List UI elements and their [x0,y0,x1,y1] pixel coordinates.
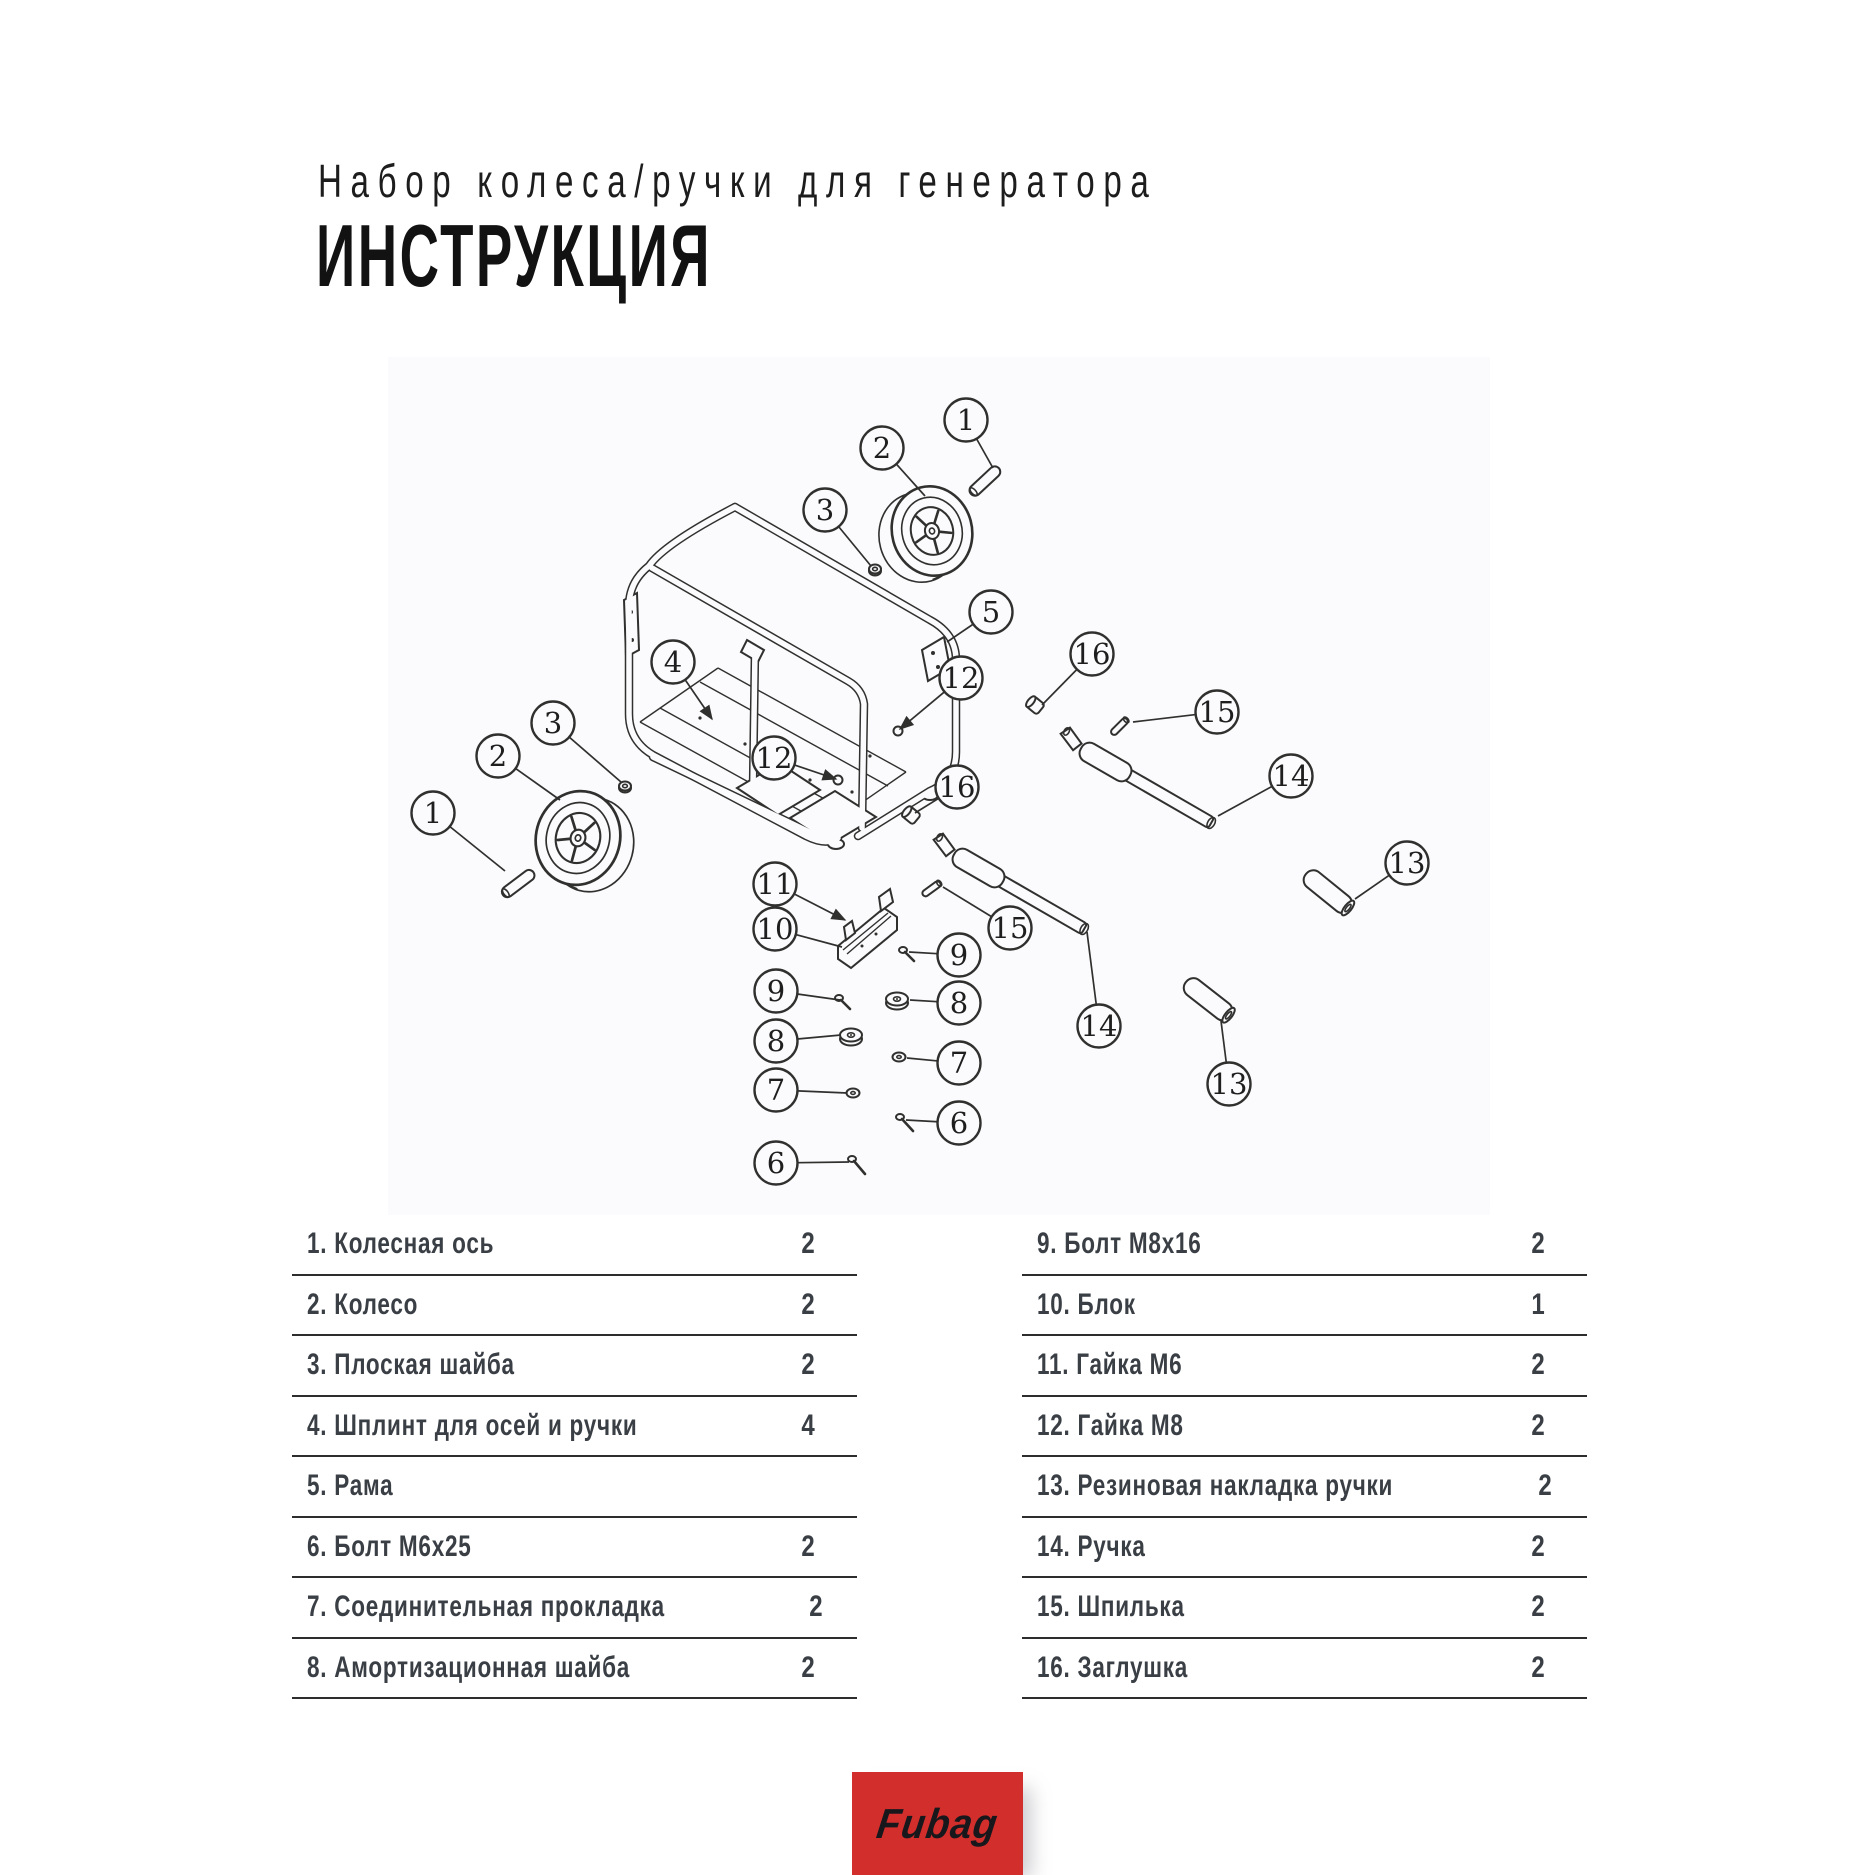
part-name: 8. Амортизационная шайба [292,1651,630,1685]
callout-5: 5 [947,591,1013,643]
part-name: 4. Шплинт для осей и ручки [292,1409,637,1443]
stud-lower [921,879,943,897]
parts-table-right: 9. Болт М8х16210. Блок111. Гайка М6212. … [1022,1215,1587,1699]
svg-text:13: 13 [1211,1067,1248,1101]
svg-text:1: 1 [957,403,975,437]
svg-text:3: 3 [816,493,834,527]
parts-row-2: 2. Колесо2 [292,1276,857,1337]
callout-13: 13 [1355,842,1429,900]
part-qty: 2 [1510,1409,1566,1443]
parts-row-5: 5. Рама [292,1457,857,1518]
part-qty: 2 [780,1288,836,1322]
part-qty: 2 [1510,1348,1566,1382]
callout-7: 7 [755,1069,848,1112]
parts-row-4: 4. Шплинт для осей и ручки4 [292,1397,857,1458]
page-heading: ИНСТРУКЦИЯ [316,212,712,300]
callout-8: 8 [755,1020,842,1063]
svg-text:1: 1 [424,796,442,830]
svg-text:3: 3 [544,706,562,740]
part-name: 7. Соединительная прокладка [292,1590,665,1624]
parts-row-11: 11. Гайка М62 [1022,1336,1587,1397]
axle-pin-lower [500,868,537,900]
part-qty: 2 [1510,1530,1566,1564]
callout-14: 14 [1078,932,1121,1048]
parts-row-13: 13. Резиновая накладка ручки2 [1022,1457,1587,1518]
svg-text:14: 14 [1081,1009,1118,1043]
svg-text:16: 16 [939,770,976,804]
callout-7: 7 [907,1042,981,1085]
part-name: 12. Гайка М8 [1022,1409,1184,1443]
diagram-panel: 1235412161514133211216111015998877661413 [388,357,1490,1215]
parts-row-7: 7. Соединительная прокладка2 [292,1578,857,1639]
callout-9: 9 [755,970,841,1013]
part-qty: 1 [1510,1288,1566,1322]
callout-14: 14 [1218,755,1313,817]
svg-text:13: 13 [1389,846,1426,880]
page-title: Набор колеса/ручки для генератора [318,158,1157,204]
svg-text:2: 2 [489,739,507,773]
brand-plate: Fubag [852,1772,1023,1875]
shock-washer-upper [886,993,908,1010]
callout-13: 13 [1208,1021,1251,1106]
part-qty: 2 [780,1651,836,1685]
gasket-lower [847,1089,860,1098]
svg-text:15: 15 [1199,695,1236,729]
stud-upper [1110,716,1130,736]
callout-10: 10 [754,908,843,951]
part-name: 3. Плоская шайба [292,1348,515,1382]
part-name: 11. Гайка М6 [1022,1348,1182,1382]
svg-text:9: 9 [950,938,968,972]
svg-text:15: 15 [992,911,1029,945]
part-name: 9. Болт М8х16 [1022,1227,1201,1261]
wheel-upper-illustration [868,477,983,591]
flat-washer-lower [619,782,631,793]
part-qty: 2 [1522,1469,1567,1503]
svg-text:12: 12 [943,661,980,695]
part-qty: 2 [780,1530,836,1564]
svg-text:2: 2 [873,431,891,465]
part-name: 13. Резиновая накладка ручки [1022,1469,1393,1503]
part-name: 15. Шпилька [1022,1590,1185,1624]
bolt-m8-upper [899,947,914,961]
rubber-grip-bottom [1180,975,1237,1025]
callout-6: 6 [755,1142,850,1185]
axle-pin-upper [967,464,1002,498]
brand-logo: Fubag [874,1800,1001,1848]
parts-row-1: 1. Колесная ось2 [292,1215,857,1276]
part-name: 16. Заглушка [1022,1651,1188,1685]
svg-text:8: 8 [950,986,968,1020]
exploded-diagram-svg: 1235412161514133211216111015998877661413 [388,357,1490,1215]
part-qty: 2 [780,1348,836,1382]
part-qty: 2 [795,1590,838,1624]
bolt-m8-lower [835,995,850,1009]
callout-3: 3 [532,702,622,783]
parts-row-15: 15. Шпилька2 [1022,1578,1587,1639]
svg-text:5: 5 [982,595,1000,629]
parts-row-9: 9. Болт М8х162 [1022,1215,1587,1276]
part-qty: 2 [1510,1651,1566,1685]
callout-9: 9 [909,934,981,977]
svg-text:9: 9 [767,974,785,1008]
parts-row-10: 10. Блок1 [1022,1276,1587,1337]
svg-text:10: 10 [757,912,794,946]
gasket-upper [893,1053,906,1062]
handle-upper-illustration [1055,725,1221,833]
bolt-m6-lower [848,1156,865,1174]
svg-text:7: 7 [767,1073,785,1107]
callout-2: 2 [861,427,926,497]
part-qty: 2 [1510,1227,1566,1261]
callout-8: 8 [910,982,981,1025]
callout-16: 16 [915,766,979,814]
parts-table-left: 1. Колесная ось22. Колесо23. Плоская шай… [292,1215,857,1699]
part-name: 5. Рама [292,1469,393,1503]
callout-1: 1 [945,399,994,469]
parts-row-12: 12. Гайка М82 [1022,1397,1587,1458]
part-qty: 4 [780,1409,836,1443]
part-name: 2. Колесо [292,1288,418,1322]
svg-text:16: 16 [1074,637,1111,671]
svg-text:6: 6 [767,1146,785,1180]
svg-text:8: 8 [767,1024,785,1058]
svg-text:11: 11 [757,867,794,901]
part-name: 14. Ручка [1022,1530,1146,1564]
part-name: 1. Колесная ось [292,1227,494,1261]
parts-row-8: 8. Амортизационная шайба2 [292,1639,857,1700]
rubber-grip-right [1300,867,1357,918]
callout-1: 1 [412,792,506,872]
svg-text:14: 14 [1273,759,1310,793]
block-illustration [838,889,897,968]
part-name: 6. Болт М6х25 [292,1530,471,1564]
callout-16: 16 [1042,633,1114,706]
svg-text:7: 7 [950,1046,968,1080]
wheel-lower-illustration [524,781,645,901]
svg-text:4: 4 [664,645,682,679]
callout-15: 15 [1133,691,1239,734]
part-qty: 2 [1510,1590,1566,1624]
parts-row-3: 3. Плоская шайба2 [292,1336,857,1397]
callout-12: 12 [900,657,983,730]
bolt-m6-upper [896,1114,913,1131]
svg-text:12: 12 [756,741,793,775]
svg-text:6: 6 [950,1106,968,1140]
fasteners-illustration [835,947,914,1174]
callout-6: 6 [906,1102,981,1145]
parts-row-16: 16. Заглушка2 [1022,1639,1587,1700]
part-qty: 2 [780,1227,836,1261]
part-name: 10. Блок [1022,1288,1136,1322]
shock-washer-lower [840,1029,862,1046]
parts-row-6: 6. Болт М6х252 [292,1518,857,1579]
parts-row-14: 14. Ручка2 [1022,1518,1587,1579]
